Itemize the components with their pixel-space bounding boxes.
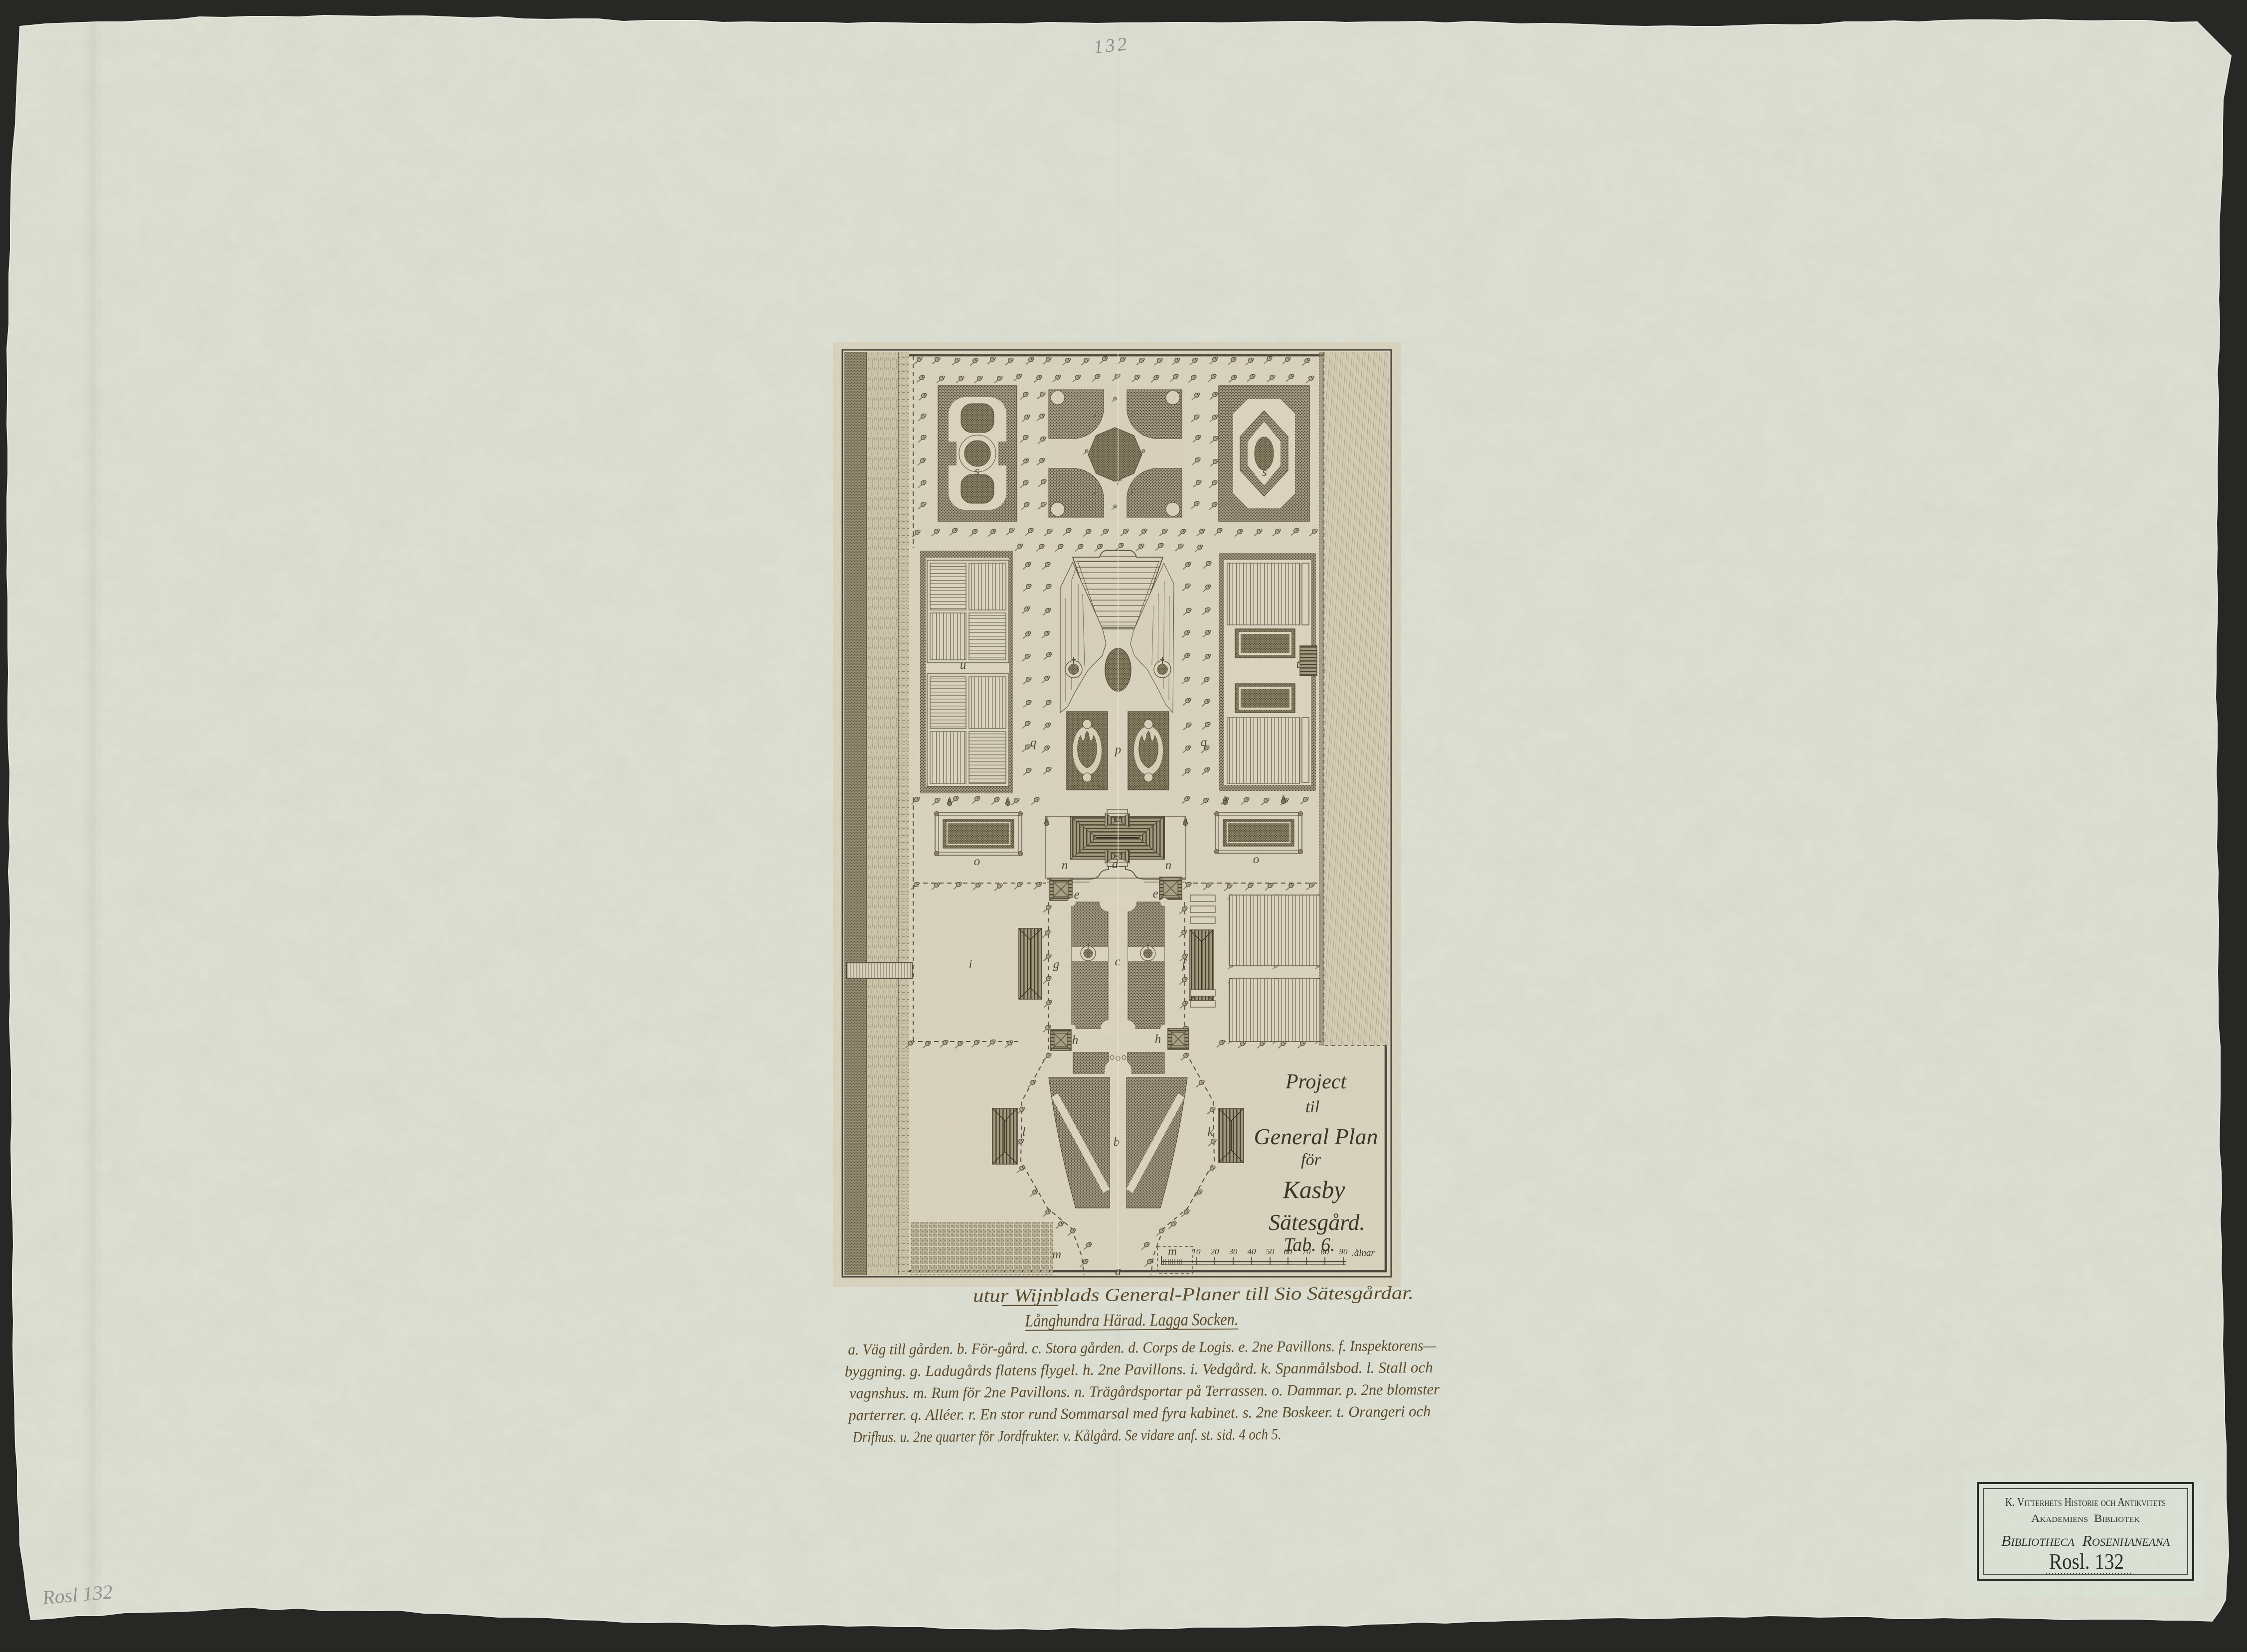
- svg-text:k: k: [1207, 1125, 1213, 1139]
- svg-text:40: 40: [1248, 1247, 1257, 1256]
- svg-text:10: 10: [1192, 1247, 1201, 1256]
- svg-text:o: o: [1253, 853, 1260, 866]
- svg-text:r: r: [1117, 475, 1122, 488]
- svg-text:Akademiens Bibliotek: Akademiens Bibliotek: [2031, 1512, 2140, 1524]
- svg-text:n: n: [1165, 859, 1172, 872]
- svg-text:s: s: [974, 464, 979, 478]
- svg-text:u: u: [960, 658, 966, 672]
- svg-text:Sätesgård.: Sätesgård.: [1269, 1209, 1365, 1235]
- svg-text:Långhundra Härad. Lagga Socken: Långhundra Härad. Lagga Socken.: [1024, 1310, 1238, 1331]
- svg-text:d: d: [1112, 858, 1119, 871]
- svg-text:m: m: [1168, 1245, 1177, 1258]
- svg-text:til: til: [1305, 1098, 1319, 1116]
- svg-text:Drifhus. u. 2ne quarter för Jo: Drifhus. u. 2ne quarter för Jordfrukter.…: [852, 1425, 1282, 1446]
- svg-text:utur Wijnblads General-Planer: utur Wijnblads General-Planer till Sio S…: [973, 1283, 1414, 1306]
- svg-text:för: för: [1301, 1151, 1321, 1169]
- svg-text:o: o: [974, 855, 980, 868]
- svg-text:q: q: [1201, 736, 1207, 749]
- svg-text:h: h: [1072, 1034, 1079, 1047]
- svg-text:s: s: [1262, 465, 1267, 479]
- svg-text:50: 50: [1266, 1247, 1275, 1256]
- svg-text:q: q: [1030, 736, 1037, 750]
- svg-text:t: t: [1296, 657, 1300, 671]
- svg-text:i: i: [969, 958, 972, 971]
- svg-text:e: e: [1152, 887, 1158, 901]
- svg-text:m: m: [1052, 1248, 1061, 1261]
- svg-text:Project: Project: [1285, 1070, 1347, 1093]
- svg-text:Rosl. 132: Rosl. 132: [2049, 1549, 2124, 1574]
- svg-text:20: 20: [1211, 1247, 1220, 1256]
- svg-text:K. Vitterhets Historie och Ant: K. Vitterhets Historie och Antikvitets: [2005, 1496, 2166, 1509]
- svg-text:90: 90: [1339, 1247, 1348, 1256]
- svg-text:132: 132: [1093, 33, 1130, 58]
- svg-text:n: n: [1062, 859, 1068, 872]
- svg-text:Bibliotheca Rosenhaneana: Bibliotheca Rosenhaneana: [2001, 1532, 2170, 1549]
- svg-text:e: e: [1074, 888, 1079, 901]
- svg-text:h: h: [1155, 1033, 1161, 1046]
- svg-text:Tab. 6.: Tab. 6.: [1284, 1234, 1335, 1255]
- svg-text:30: 30: [1229, 1247, 1238, 1256]
- svg-text:l: l: [1022, 1125, 1026, 1139]
- svg-text:.ålnar: .ålnar: [1352, 1248, 1375, 1258]
- svg-text:General Plan: General Plan: [1254, 1124, 1378, 1149]
- svg-text:g: g: [1053, 958, 1060, 971]
- svg-text:Kasby: Kasby: [1283, 1176, 1346, 1203]
